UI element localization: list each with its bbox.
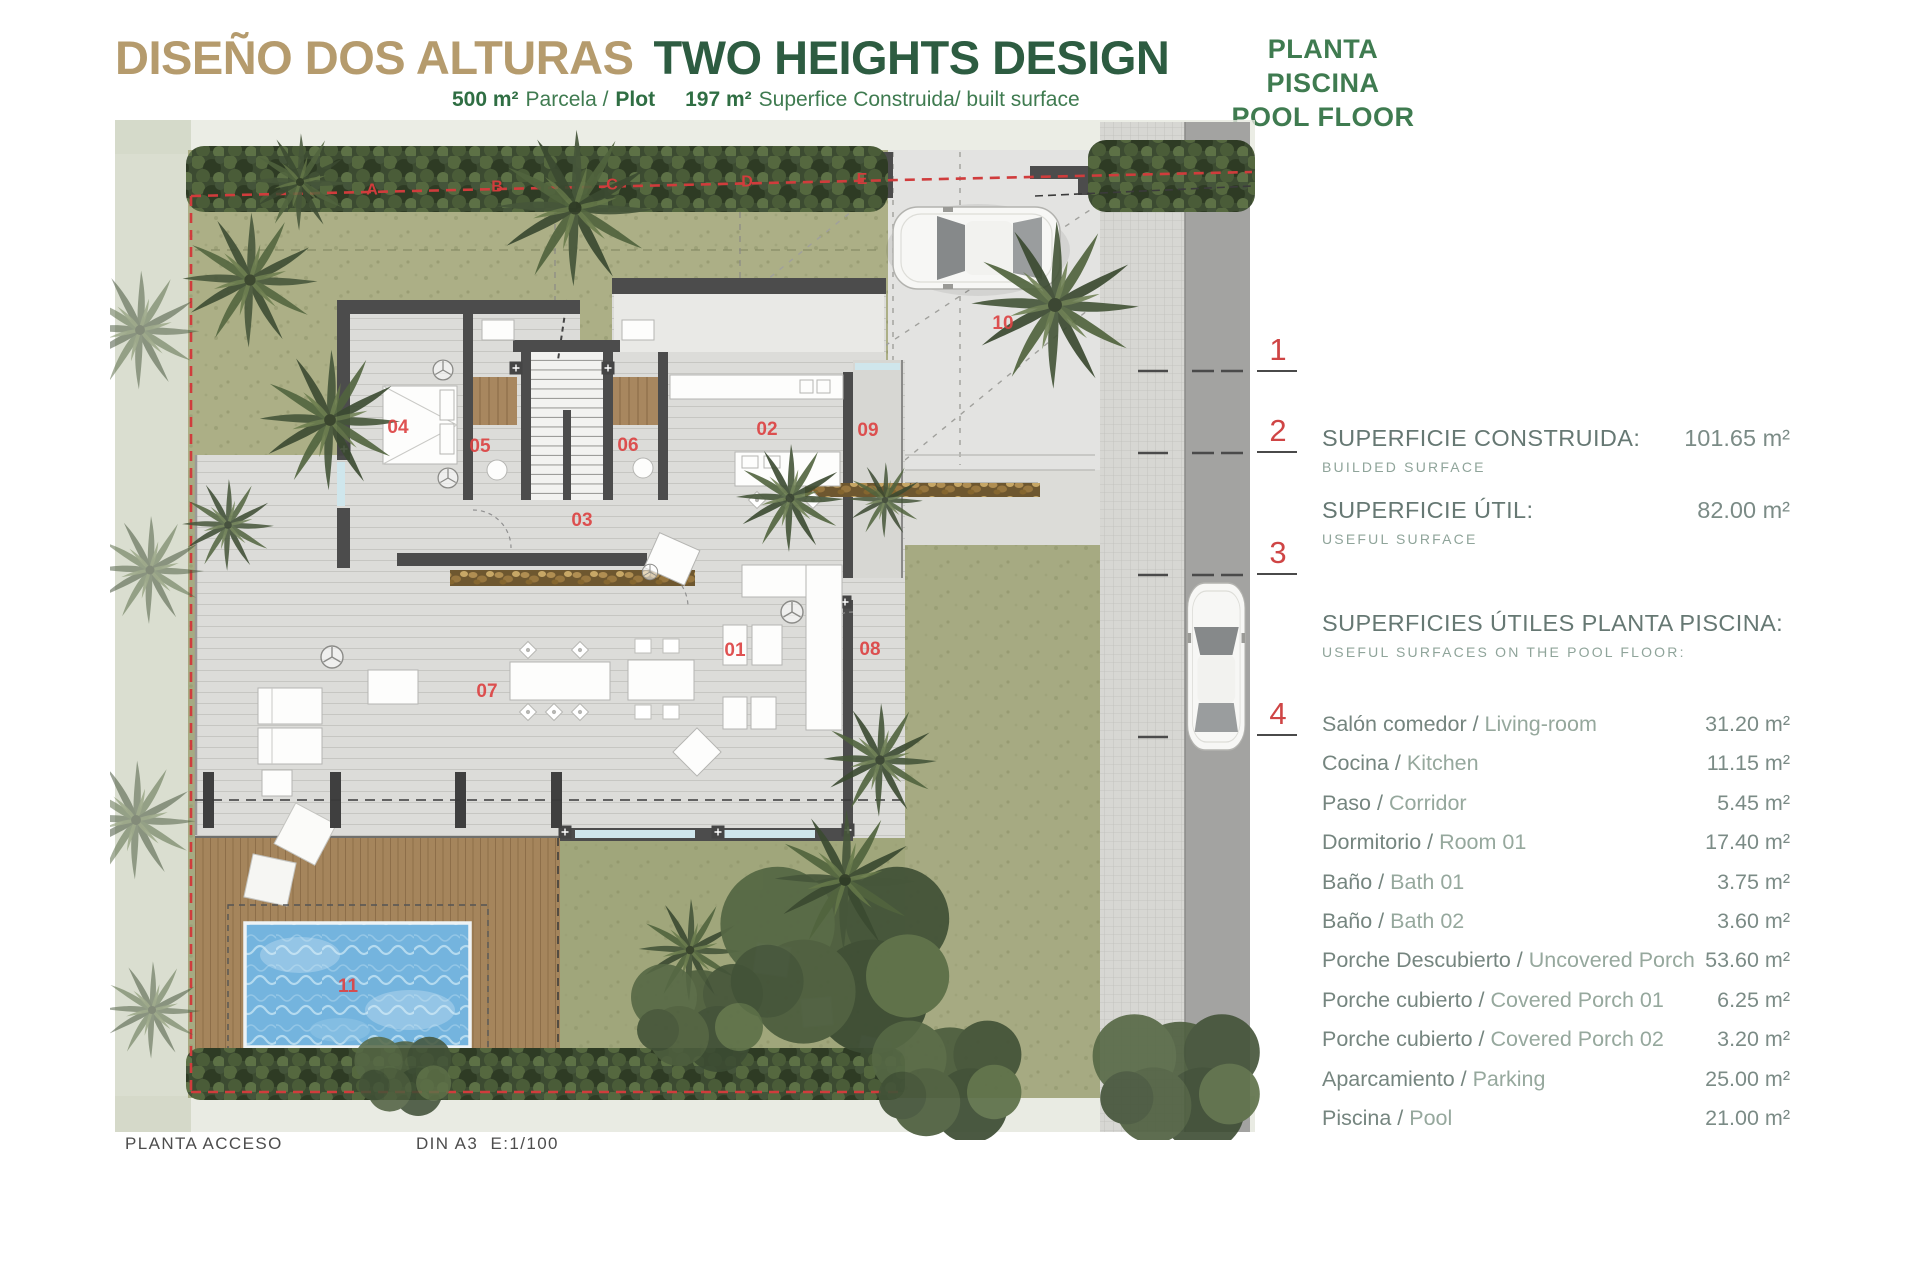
- room-name-en: Room 01: [1439, 830, 1526, 854]
- subtitle-part: Plot: [615, 88, 655, 111]
- room-label-06: 06: [617, 435, 638, 456]
- room-surface-value: 5.45 m²: [1717, 791, 1790, 816]
- plan-sheet: DISEÑO DOS ALTURASTWO HEIGHTS DESIGN 500…: [0, 0, 1920, 1280]
- title-english: TWO HEIGHTS DESIGN: [653, 31, 1169, 84]
- room-name-en: Kitchen: [1407, 751, 1479, 775]
- room-surface-table: Salón comedor / Living-room31.20 m²Cocin…: [1322, 712, 1790, 1145]
- boundary-letter-E: E: [857, 171, 868, 188]
- room-name-es: Piscina /: [1322, 1106, 1409, 1130]
- room-surface-value: 21.00 m²: [1705, 1106, 1790, 1131]
- room-surface-value: 17.40 m²: [1705, 830, 1790, 855]
- index-underline: [1257, 451, 1297, 453]
- room-name-en: Bath 02: [1390, 909, 1464, 933]
- title-spanish: DISEÑO DOS ALTURAS: [115, 31, 633, 84]
- room-label-02: 02: [756, 419, 777, 440]
- index-number: 2: [1256, 413, 1300, 449]
- room-label-05: 05: [469, 436, 491, 457]
- index-underline: [1257, 573, 1297, 575]
- room-name-en: Living-room: [1485, 712, 1597, 736]
- boundary-letter-D: D: [741, 174, 753, 191]
- index-underline: [1257, 370, 1297, 372]
- room-name-en: Pool: [1409, 1106, 1452, 1130]
- parked-car-icon: [893, 207, 1060, 289]
- room-name-es: Cocina /: [1322, 751, 1407, 775]
- room-surface-value: 31.20 m²: [1705, 712, 1790, 737]
- room-surface-value: 53.60 m²: [1705, 948, 1790, 973]
- surface-row: Piscina / Pool21.00 m²: [1322, 1106, 1790, 1145]
- surface-row: Salón comedor / Living-room31.20 m²: [1322, 712, 1790, 751]
- built-surface-section: SUPERFICIE CONSTRUIDA: 101.65 m² BUILDED…: [1322, 425, 1790, 475]
- surface-row: Porche cubierto / Covered Porch 016.25 m…: [1322, 988, 1790, 1027]
- room-name-en: Corridor: [1389, 791, 1467, 815]
- useful-surface-sublabel: USEFUL SURFACE: [1322, 531, 1790, 547]
- site-plan-drawing: 0102030405060708091011 ABCDE: [110, 118, 1260, 1140]
- room-name-en: Parking: [1473, 1067, 1546, 1091]
- room-label-09: 09: [857, 420, 878, 441]
- room-name-es: Baño /: [1322, 909, 1390, 933]
- room-name-es: Porche Descubierto /: [1322, 948, 1529, 972]
- room-name-es: Porche cubierto /: [1322, 1027, 1491, 1051]
- room-label-03: 03: [571, 510, 592, 531]
- surface-row: Paso / Corridor5.45 m²: [1322, 791, 1790, 830]
- room-surface-value: 3.60 m²: [1717, 909, 1790, 934]
- room-label-01: 01: [724, 640, 746, 661]
- boundary-letter-A: A: [366, 181, 378, 198]
- room-label-07: 07: [476, 681, 497, 702]
- room-name-en: Uncovered Porch: [1529, 948, 1695, 972]
- boundary-letter-B: B: [491, 179, 503, 196]
- room-name-es: Salón comedor /: [1322, 712, 1485, 736]
- room-surface-value: 25.00 m²: [1705, 1067, 1790, 1092]
- built-surface-sublabel: BUILDED SURFACE: [1322, 459, 1790, 475]
- surface-row: Porche Descubierto / Uncovered Porch53.6…: [1322, 948, 1790, 987]
- room-surface-value: 3.20 m²: [1717, 1027, 1790, 1052]
- page-title: DISEÑO DOS ALTURASTWO HEIGHTS DESIGN: [115, 30, 1169, 85]
- street-car-icon: [1188, 583, 1245, 750]
- room-name-en: Covered Porch 02: [1491, 1027, 1664, 1051]
- useful-surface-value: 82.00 m²: [1697, 497, 1790, 524]
- floor-name-es: PLANTA PISCINA: [1212, 32, 1434, 100]
- room-name-es: Aparcamiento /: [1322, 1067, 1473, 1091]
- surface-row: Dormitorio / Room 0117.40 m²: [1322, 830, 1790, 869]
- room-surface-value: 6.25 m²: [1717, 988, 1790, 1013]
- room-surface-value: 3.75 m²: [1717, 870, 1790, 895]
- subtitle-part: 500 m²: [452, 88, 519, 111]
- index-underline: [1257, 734, 1297, 736]
- index-number: 1: [1256, 332, 1300, 368]
- surface-row: Baño / Bath 013.75 m²: [1322, 870, 1790, 909]
- index-number: 4: [1256, 696, 1300, 732]
- room-name-en: Bath 01: [1390, 870, 1464, 894]
- room-name-es: Baño /: [1322, 870, 1390, 894]
- useful-surface-section: SUPERFICIE ÚTIL: 82.00 m² USEFUL SURFACE: [1322, 497, 1790, 547]
- room-label-04: 04: [387, 417, 409, 438]
- room-label-11: 11: [338, 976, 359, 997]
- subtitle-part: Parcela /: [526, 88, 609, 111]
- list-header-sublabel: USEFUL SURFACES ON THE POOL FLOOR:: [1322, 644, 1790, 660]
- room-name-es: Paso /: [1322, 791, 1389, 815]
- room-surface-value: 11.15 m²: [1707, 751, 1790, 776]
- plot-surface-subtitle: 500 m²Parcela /Plot197 m²Superfice Const…: [452, 88, 1080, 112]
- surface-row: Aparcamiento / Parking25.00 m²: [1322, 1067, 1790, 1106]
- room-label-08: 08: [859, 639, 880, 660]
- surface-row: Baño / Bath 023.60 m²: [1322, 909, 1790, 948]
- room-name-es: Dormitorio /: [1322, 830, 1439, 854]
- subtitle-part: Superfice Construida/ built surface: [759, 88, 1080, 111]
- list-header-label: SUPERFICIES ÚTILES PLANTA PISCINA:: [1322, 610, 1790, 637]
- index-number: 3: [1256, 535, 1300, 571]
- room-label-10: 10: [992, 313, 1013, 334]
- surface-row: Cocina / Kitchen11.15 m²: [1322, 751, 1790, 790]
- built-surface-value: 101.65 m²: [1684, 425, 1790, 452]
- useful-surfaces-list-header: SUPERFICIES ÚTILES PLANTA PISCINA: USEFU…: [1322, 610, 1790, 660]
- surface-row: Porche cubierto / Covered Porch 023.20 m…: [1322, 1027, 1790, 1066]
- subtitle-part: 197 m²: [685, 88, 752, 111]
- boundary-letter-C: C: [606, 176, 618, 193]
- room-name-es: Porche cubierto /: [1322, 988, 1491, 1012]
- room-name-en: Covered Porch 01: [1491, 988, 1664, 1012]
